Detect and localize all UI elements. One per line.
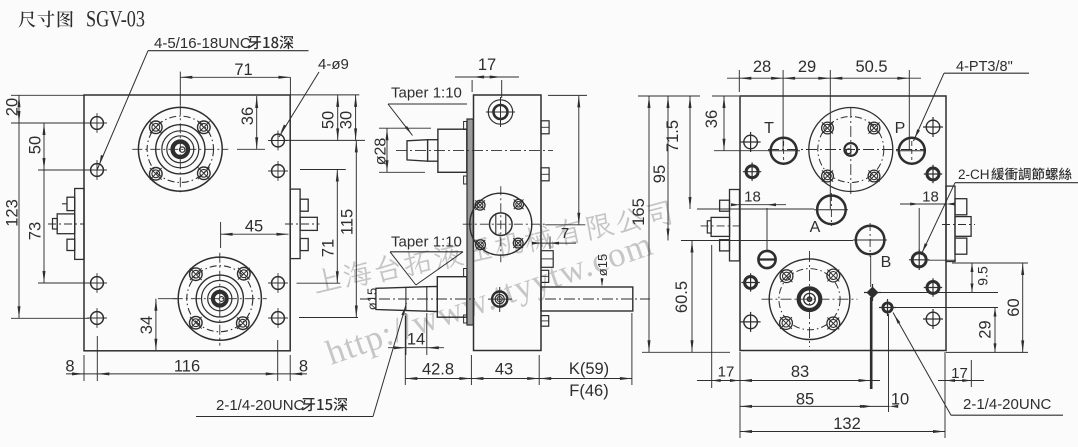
svg-text:4-PT3/8": 4-PT3/8"	[956, 59, 1013, 75]
svg-text:60: 60	[1005, 298, 1023, 316]
svg-text:8: 8	[65, 358, 74, 376]
svg-text:50: 50	[320, 111, 338, 129]
svg-text:17: 17	[718, 364, 735, 381]
svg-text:14: 14	[407, 331, 425, 349]
svg-text:4-ø9: 4-ø9	[318, 56, 349, 73]
svg-text:10: 10	[891, 391, 909, 409]
svg-text:85: 85	[796, 391, 814, 409]
svg-text:ø28: ø28	[373, 138, 390, 166]
svg-text:2-1/4-20UNC: 2-1/4-20UNC	[963, 396, 1052, 413]
svg-text:45: 45	[245, 218, 263, 236]
svg-text:29: 29	[977, 320, 995, 338]
svg-text:71.5: 71.5	[664, 120, 682, 152]
svg-text:36: 36	[239, 107, 257, 125]
svg-text:9.5: 9.5	[975, 266, 991, 286]
svg-text:28: 28	[753, 58, 771, 76]
svg-text:SGV-03: SGV-03	[86, 7, 145, 33]
svg-text:116: 116	[174, 358, 200, 376]
svg-text:8: 8	[299, 358, 308, 376]
svg-text:20: 20	[4, 98, 22, 116]
svg-text:ø15: ø15	[365, 288, 380, 310]
svg-text:17: 17	[478, 56, 496, 74]
svg-text:71: 71	[319, 239, 337, 257]
svg-text:ø15: ø15	[595, 254, 610, 276]
svg-text:71: 71	[234, 61, 252, 79]
svg-text:B: B	[881, 254, 892, 271]
svg-text:F(46): F(46)	[569, 382, 608, 400]
svg-text:Taper 1:10: Taper 1:10	[391, 85, 462, 102]
svg-text:60.5: 60.5	[673, 281, 691, 313]
svg-text:36: 36	[703, 110, 721, 128]
svg-text:18: 18	[922, 189, 939, 206]
svg-text:Taper 1:10: Taper 1:10	[391, 234, 462, 251]
svg-text:50: 50	[27, 136, 45, 154]
svg-text:29: 29	[798, 58, 816, 76]
svg-text:A: A	[810, 219, 821, 236]
svg-text:7: 7	[561, 225, 569, 242]
svg-text:43: 43	[495, 361, 513, 379]
svg-text:95: 95	[651, 165, 669, 183]
svg-text:123: 123	[4, 199, 22, 227]
svg-text:42.8: 42.8	[422, 361, 454, 379]
svg-text:2-CH: 2-CH	[958, 167, 990, 182]
svg-text:165: 165	[630, 198, 648, 226]
svg-text:50.5: 50.5	[855, 58, 887, 76]
svg-text:2-1/4-20UNC: 2-1/4-20UNC	[216, 397, 305, 414]
svg-text:T: T	[764, 120, 774, 137]
svg-text:K(59): K(59)	[569, 360, 609, 378]
svg-text:30: 30	[338, 111, 356, 129]
svg-text:4-5/16-18UNC: 4-5/16-18UNC	[154, 35, 251, 52]
svg-text:132: 132	[833, 415, 861, 433]
svg-text:P: P	[895, 120, 906, 137]
svg-text:73: 73	[27, 222, 45, 240]
svg-text:83: 83	[791, 363, 809, 381]
svg-text:17: 17	[951, 365, 968, 382]
svg-text:115: 115	[338, 209, 356, 235]
svg-text:18: 18	[744, 189, 761, 206]
svg-text:34: 34	[138, 316, 156, 334]
